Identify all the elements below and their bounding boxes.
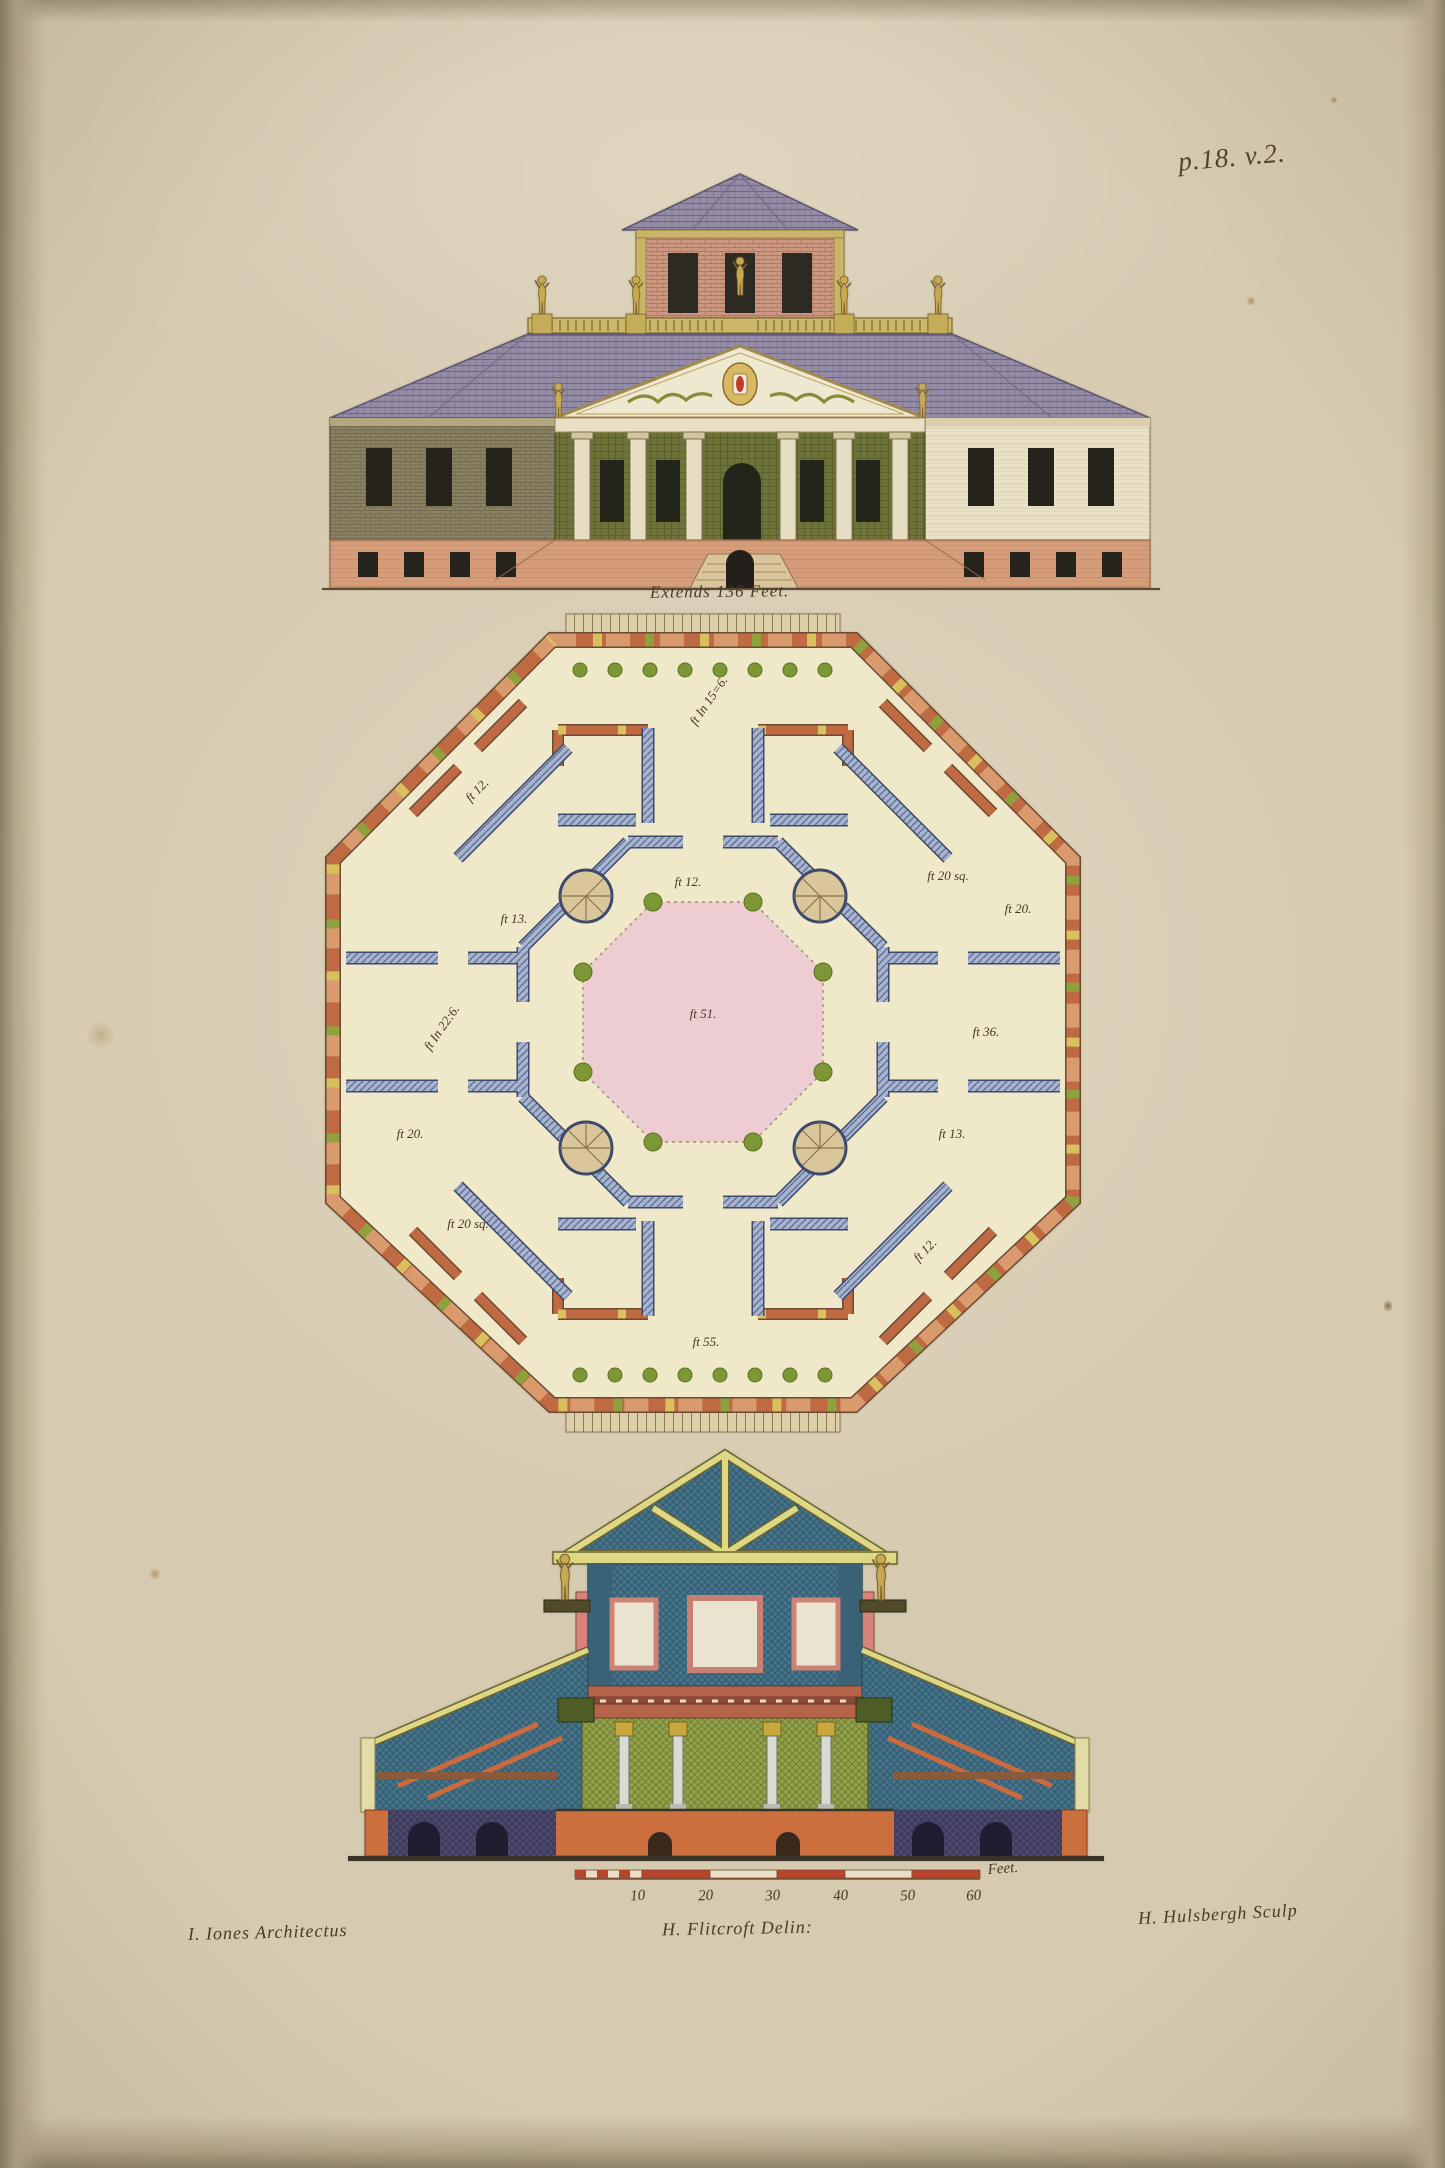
right-attic — [862, 1650, 1089, 1812]
great-hall — [558, 1698, 892, 1810]
scale-bar-blocks — [575, 1870, 980, 1879]
scale-tick: 30 — [764, 1887, 782, 1904]
credit-architect: I. Iones Architectus — [188, 1920, 348, 1945]
scale-bar: 10 20 30 40 50 60 Feet. — [560, 1856, 1030, 1912]
plan-room-label: ft 36. — [973, 1024, 1000, 1039]
portico — [555, 418, 925, 540]
elevation-figure — [318, 168, 1164, 600]
plan-room-label: ft 12. — [675, 874, 702, 889]
scale-unit-label: Feet. — [986, 1860, 1018, 1878]
scale-tick: 10 — [630, 1887, 647, 1904]
credit-draughtsman: H. Flitcroft Delin: — [662, 1917, 813, 1941]
basement — [365, 1810, 1087, 1856]
plan-room-label: ft 20 sq. — [447, 1216, 489, 1231]
scale-tick: 60 — [966, 1887, 983, 1904]
plan-room-label: ft 20 sq. — [927, 868, 969, 883]
plan-room-label: ft 13. — [501, 911, 528, 926]
section-figure — [348, 1442, 1104, 1874]
scale-tick: 20 — [698, 1887, 715, 1904]
lantern-roof — [622, 174, 858, 230]
scale-tick: 50 — [900, 1887, 917, 1904]
lantern-section — [576, 1564, 874, 1705]
roof-truss — [553, 1454, 897, 1564]
left-attic — [361, 1650, 588, 1812]
elevation-caption: Extends 136 Feet. — [650, 581, 789, 602]
plan-figure: ft In 15=6. ft 12. ft 20 sq. ft 12. ft 1… — [318, 608, 1088, 1438]
right-wing — [925, 418, 1150, 540]
plan-room-label: ft 55. — [693, 1334, 720, 1349]
left-wing — [330, 418, 555, 540]
scale-bar-tick-labels: 10 20 30 40 50 60 — [630, 1887, 983, 1904]
plan-room-label: ft 20. — [397, 1126, 424, 1141]
scale-tick: 40 — [833, 1887, 850, 1904]
plan-room-label: ft 51. — [690, 1006, 717, 1021]
plan-room-label: ft 20. — [1005, 901, 1032, 916]
plan-room-label: ft 13. — [939, 1126, 966, 1141]
